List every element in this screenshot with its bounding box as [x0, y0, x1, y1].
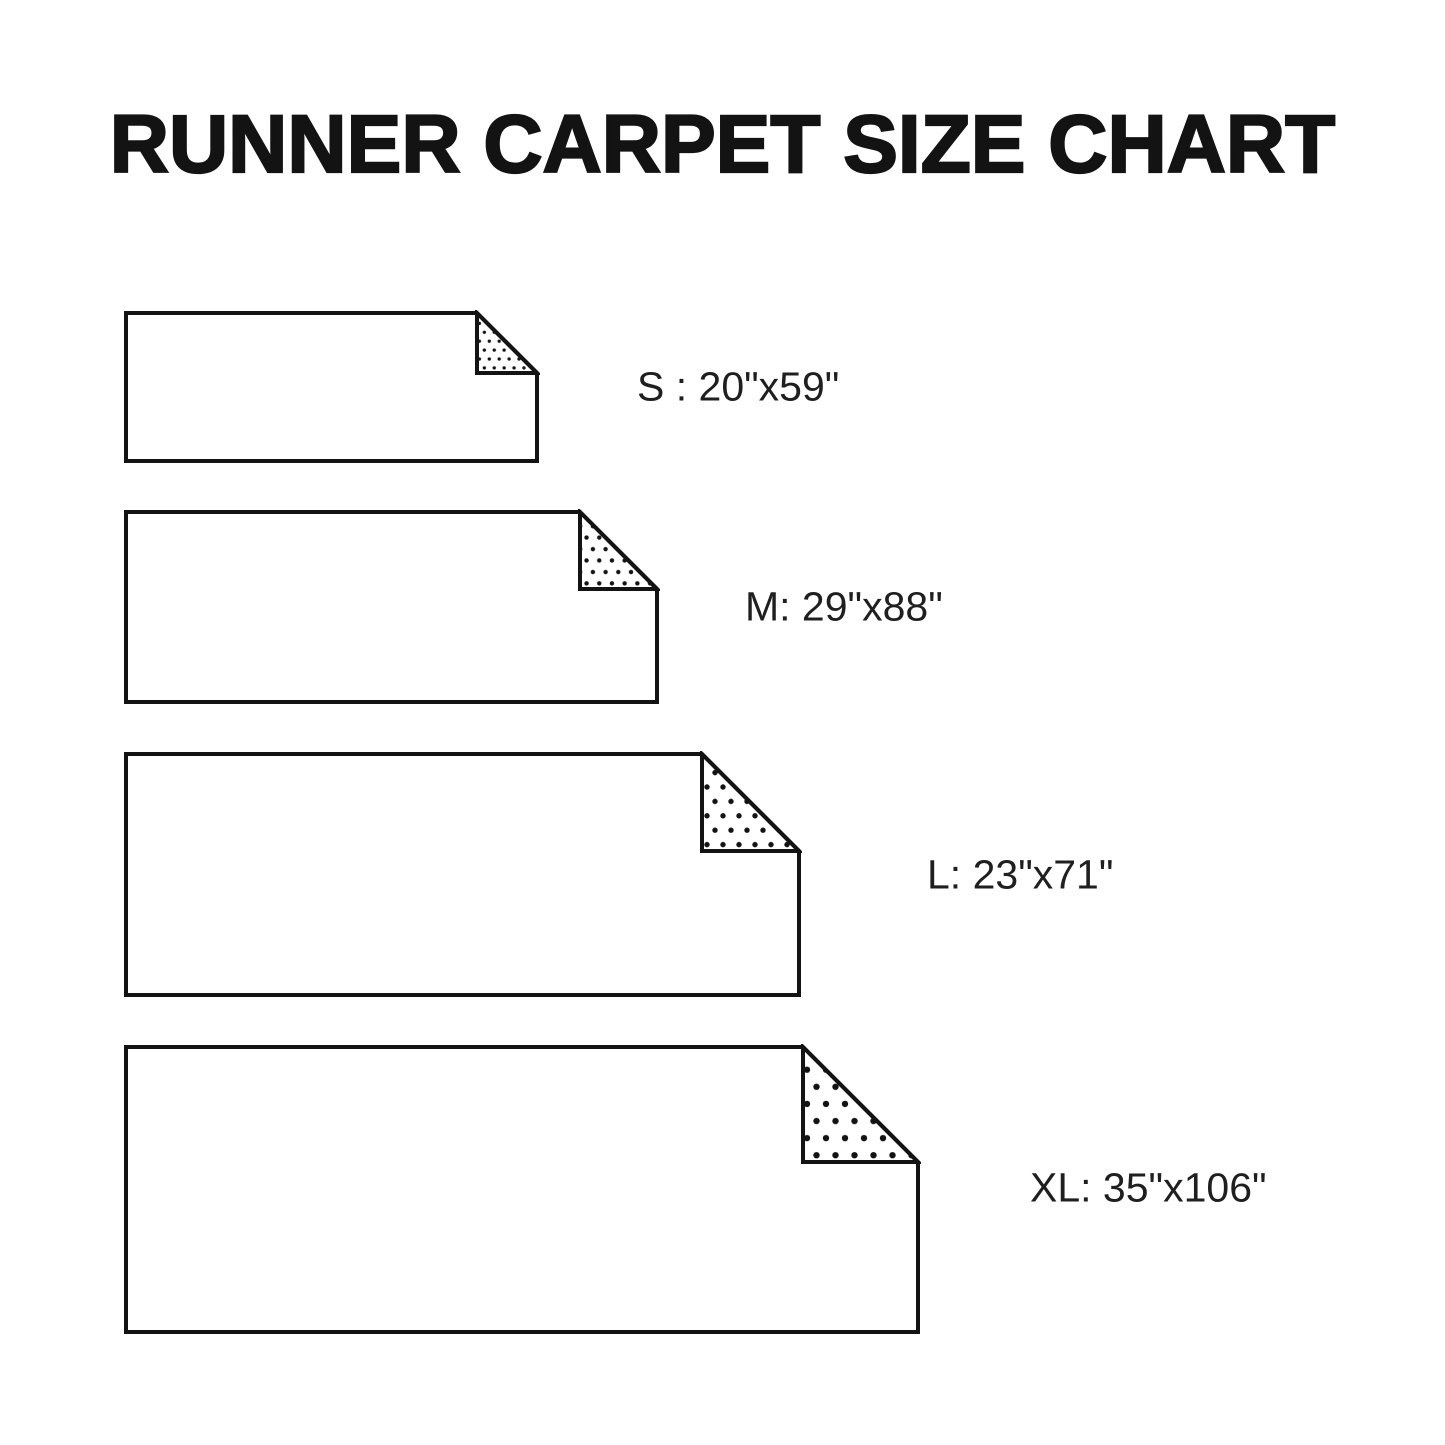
folded-corner [580, 512, 657, 589]
carpet-outline [126, 512, 657, 702]
carpet-diagram-xl [123, 1044, 921, 1335]
chart-title: RUNNER CARPET SIZE CHART [0, 104, 1445, 186]
folded-corner [803, 1047, 918, 1162]
carpet-outline [126, 754, 799, 995]
folded-corner [702, 754, 799, 851]
carpet-shape [123, 310, 540, 464]
carpet-outline [126, 1047, 918, 1332]
size-label-l: L: 23"x71" [927, 850, 1113, 899]
carpet-shape [123, 1044, 921, 1335]
size-label-m: M: 29"x88" [745, 582, 943, 631]
folded-corner [477, 313, 537, 373]
size-label-xl: XL: 35"x106" [1030, 1163, 1267, 1212]
carpet-shape [123, 751, 802, 998]
carpet-shape [123, 509, 660, 705]
carpet-diagram-l [123, 751, 802, 998]
carpet-diagram-m [123, 509, 660, 705]
carpet-diagram-s [123, 310, 540, 464]
runner-carpet-size-chart: RUNNER CARPET SIZE CHART S : 20"x59" M: … [0, 0, 1445, 1445]
size-label-s: S : 20"x59" [637, 362, 839, 411]
